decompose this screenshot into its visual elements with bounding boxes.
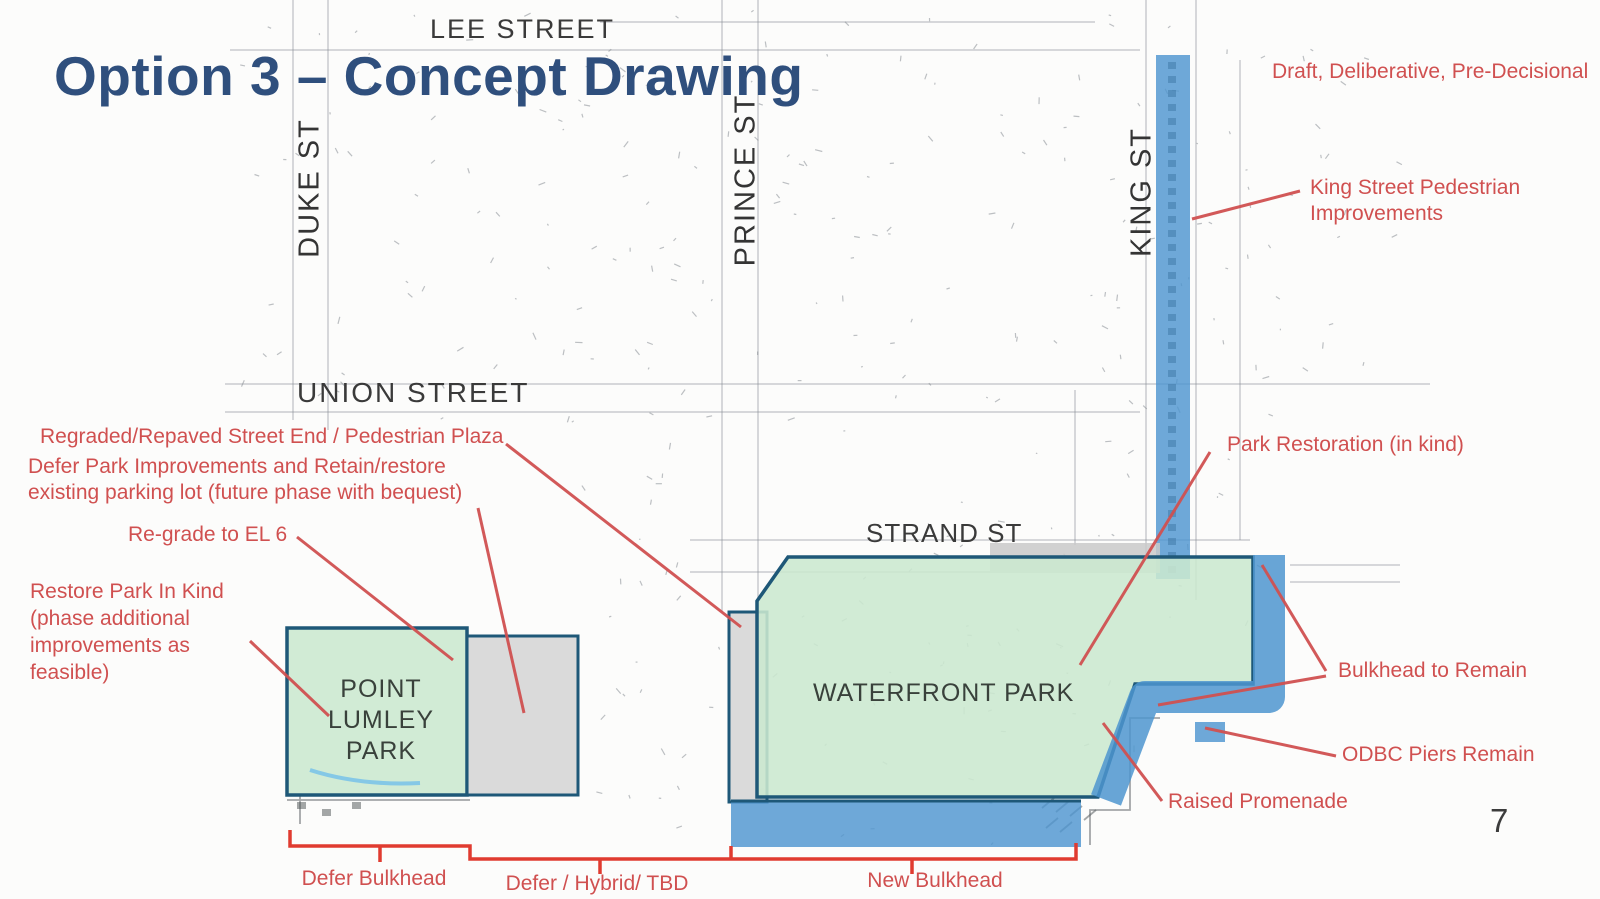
area-label-point-lumley-park: POINT LUMLEY PARK xyxy=(328,674,434,767)
annotation-new-bulkhead: New Bulkhead xyxy=(867,868,1002,894)
street-label-union: UNION STREET xyxy=(297,377,529,409)
bulkhead-pile-mark xyxy=(352,802,361,809)
street-label-prince: PRINCE ST xyxy=(730,94,763,267)
new-bulkhead-band xyxy=(731,801,1081,847)
street-label-strand: STRAND ST xyxy=(866,518,1022,549)
draft-watermark: Draft, Deliberative, Pre-Decisional xyxy=(1272,60,1588,84)
annotation-restore-park-in-kind: Restore Park In Kind (phase additional i… xyxy=(30,578,224,686)
bulkhead-pile-mark xyxy=(322,809,331,816)
bulkhead-pile-mark xyxy=(297,802,306,809)
annotation-park-restoration: Park Restoration (in kind) xyxy=(1227,432,1464,458)
annotation-regraded-street-end: Regraded/Repaved Street End / Pedestrian… xyxy=(40,424,503,450)
street-label-king: KING ST xyxy=(1126,127,1159,257)
annotation-regrade-el6: Re-grade to EL 6 xyxy=(128,522,287,548)
annotation-odbc-piers-remain: ODBC Piers Remain xyxy=(1342,742,1535,768)
street-label-lee: LEE STREET xyxy=(430,14,615,45)
leader-king-street xyxy=(1192,191,1300,219)
parking-lot-area xyxy=(467,636,578,795)
annotation-king-street-improvements: King Street Pedestrian Improvements xyxy=(1310,175,1520,227)
page-number: 7 xyxy=(1490,802,1508,840)
annotation-defer-hybrid-tbd: Defer / Hybrid/ TBD xyxy=(506,871,689,897)
slide-title: Option 3 – Concept Drawing xyxy=(54,44,803,108)
plan-overlays xyxy=(287,55,1269,847)
annotation-defer-park-improvements: Defer Park Improvements and Retain/resto… xyxy=(28,454,462,506)
waterfront-park-area xyxy=(757,557,1253,797)
annotation-bulkhead-to-remain: Bulkhead to Remain xyxy=(1338,658,1527,684)
concept-map: Option 3 – Concept Drawing Draft, Delibe… xyxy=(0,0,1600,899)
annotation-raised-promenade: Raised Promenade xyxy=(1168,789,1348,815)
area-label-waterfront-park: WATERFRONT PARK xyxy=(813,678,1074,709)
leader-regraded-street-end xyxy=(506,444,741,627)
misc-survey-lines xyxy=(1075,60,1400,582)
street-label-duke: DUKE ST xyxy=(294,118,327,258)
annotation-defer-bulkhead: Defer Bulkhead xyxy=(302,866,447,892)
